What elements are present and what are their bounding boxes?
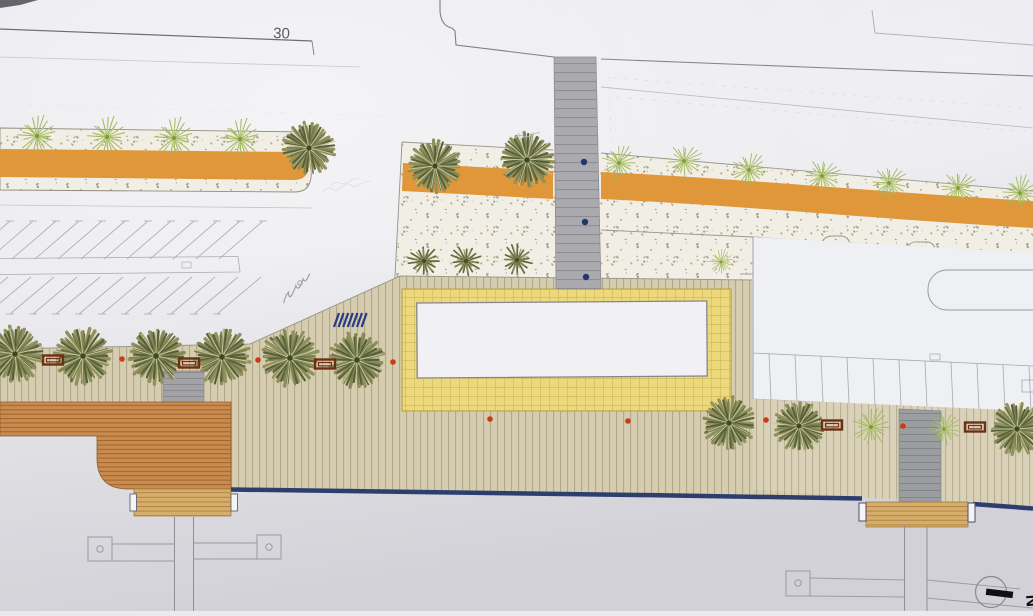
svg-text:30: 30 [273, 25, 290, 43]
svg-text:N: N [1022, 594, 1033, 608]
